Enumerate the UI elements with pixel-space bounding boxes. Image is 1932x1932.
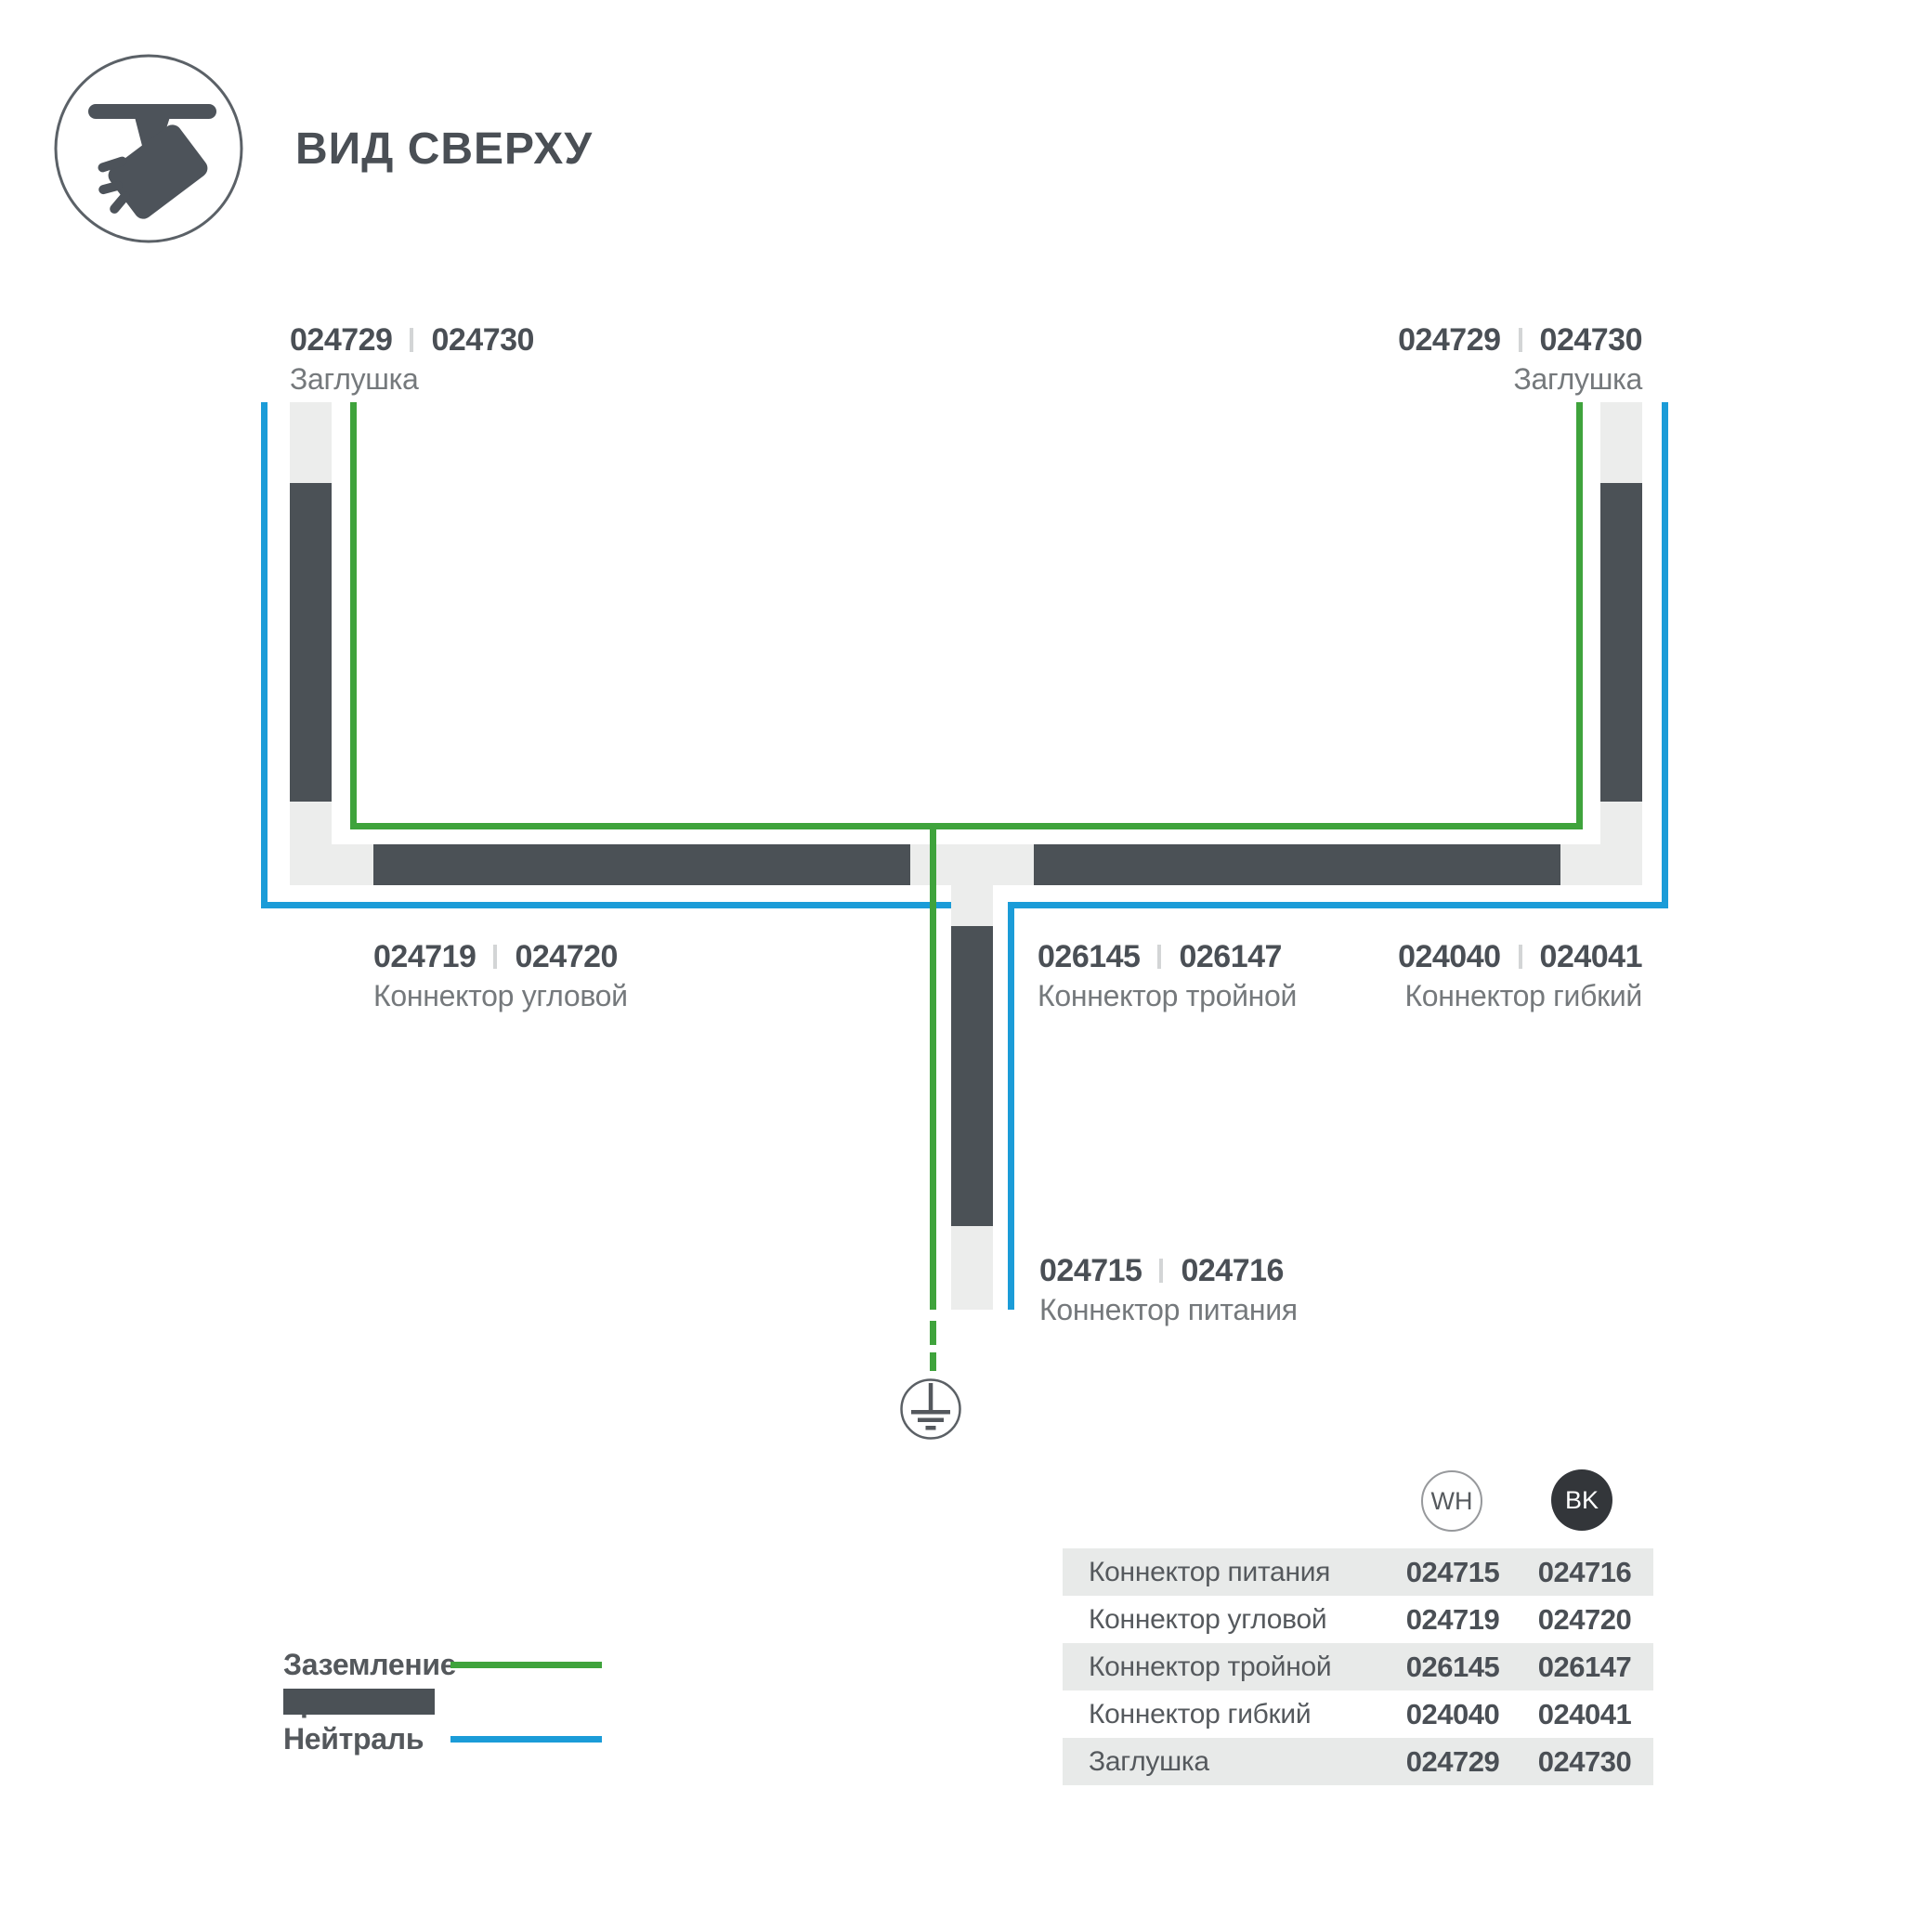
part-name: Заглушка <box>290 362 534 396</box>
track-segment-center <box>951 926 993 1226</box>
ground-line-left-vertical <box>350 402 357 829</box>
separator <box>1157 945 1161 969</box>
article-codes: 024040 024041 <box>1398 938 1642 975</box>
label-corner-connector: 024719 024720 Коннектор угловой <box>373 938 628 1012</box>
separator <box>410 328 413 352</box>
article-wh: 024729 <box>290 321 392 359</box>
table-row: Коннектор питания 024715 024716 <box>1063 1548 1653 1596</box>
article-bk: 024720 <box>515 938 617 975</box>
legend-row-neutral: Нейтраль <box>283 1720 602 1757</box>
color-badge-white: WH <box>1421 1470 1482 1532</box>
table-row: Коннектор тройной 026145 026147 <box>1063 1643 1653 1690</box>
part-name: Коннектор гибкий <box>1404 979 1642 1012</box>
legend-row-ground: Заземление <box>283 1646 602 1683</box>
legend: Заземление Трек Нейтраль <box>283 1646 602 1757</box>
article-wh: 026145 <box>1038 938 1140 975</box>
part-name: Коннектор питания <box>1039 1293 1298 1326</box>
track-segment-top-right <box>1034 844 1560 885</box>
label-flexible-connector: 024040 024041 Коннектор гибкий <box>1398 938 1642 1012</box>
track-swatch <box>283 1689 435 1715</box>
article-codes: 026145 026147 <box>1038 938 1297 975</box>
corner-connector-right-vertical <box>1600 802 1642 885</box>
triple-connector-horizontal <box>910 844 1034 885</box>
separator <box>1159 1259 1163 1283</box>
ground-line-swatch <box>450 1662 602 1668</box>
neutral-line-swatch <box>450 1736 602 1743</box>
track-spotlight-icon <box>52 52 245 245</box>
legend-label: Заземление <box>283 1648 450 1682</box>
article-codes: 024719 024720 <box>373 938 628 975</box>
corner-connector-left-horizontal <box>332 844 373 885</box>
article-wh-cell: 024715 <box>1390 1556 1516 1589</box>
neutral-line-power-drop <box>1008 902 1014 1310</box>
table-row: Коннектор гибкий 024040 024041 <box>1063 1690 1653 1738</box>
article-wh: 024719 <box>373 938 476 975</box>
separator <box>1519 328 1522 352</box>
part-name-cell: Коннектор угловой <box>1063 1604 1390 1636</box>
earth-ground-icon <box>896 1375 967 1447</box>
part-name-cell: Коннектор гибкий <box>1063 1699 1390 1730</box>
table-row: Коннектор угловой 024719 024720 <box>1063 1596 1653 1643</box>
article-bk-cell: 024730 <box>1516 1745 1653 1779</box>
article-wh-cell: 026145 <box>1390 1651 1516 1684</box>
neutral-line-left-vertical <box>261 402 268 908</box>
article-bk-cell: 024720 <box>1516 1603 1653 1637</box>
article-bk: 026147 <box>1179 938 1281 975</box>
part-name: Коннектор тройной <box>1038 979 1297 1012</box>
ground-line-right-vertical <box>1576 402 1583 829</box>
neutral-line-left-horizontal <box>261 902 951 908</box>
corner-connector-left-vertical <box>290 802 332 885</box>
triple-connector-stem <box>951 885 993 926</box>
track-segment-right <box>1600 483 1642 802</box>
article-bk-cell: 026147 <box>1516 1651 1653 1684</box>
ground-line-center-drop <box>930 823 936 1310</box>
track-segment-left <box>290 483 332 802</box>
ground-line-dash-2 <box>930 1352 936 1371</box>
legend-label: Нейтраль <box>283 1722 450 1756</box>
article-wh: 024715 <box>1039 1252 1142 1289</box>
separator <box>1519 945 1522 969</box>
track-segment-top-left <box>373 844 910 885</box>
article-wh: 024040 <box>1398 938 1500 975</box>
article-codes: 024715 024716 <box>1039 1252 1298 1289</box>
part-name: Заглушка <box>1513 362 1642 396</box>
article-bk-cell: 024716 <box>1516 1556 1653 1589</box>
ground-line-horizontal <box>350 823 1583 829</box>
diagram-canvas: ВИД СВЕРХУ 024729 024730 <box>0 0 1932 1932</box>
article-bk: 024730 <box>1540 321 1642 359</box>
label-power-connector: 024715 024716 Коннектор питания <box>1039 1252 1298 1326</box>
page-title: ВИД СВЕРХУ <box>295 124 593 175</box>
separator <box>493 945 497 969</box>
article-bk: 024041 <box>1540 938 1642 975</box>
end-cap-right <box>1600 402 1642 483</box>
color-badge-black: BK <box>1551 1469 1612 1531</box>
ground-line-dash-1 <box>930 1321 936 1345</box>
label-triple-connector: 026145 026147 Коннектор тройной <box>1038 938 1297 1012</box>
article-bk: 024730 <box>431 321 533 359</box>
legend-row-track: Трек <box>283 1683 602 1720</box>
part-name: Коннектор угловой <box>373 979 628 1012</box>
article-wh-cell: 024040 <box>1390 1698 1516 1731</box>
article-bk: 024716 <box>1181 1252 1283 1289</box>
article-wh-cell: 024719 <box>1390 1603 1516 1637</box>
part-name-cell: Коннектор питания <box>1063 1557 1390 1588</box>
neutral-line-right-vertical <box>1662 402 1668 908</box>
corner-connector-right-horizontal <box>1560 844 1600 885</box>
end-cap-left <box>290 402 332 483</box>
part-name-cell: Коннектор тройной <box>1063 1651 1390 1683</box>
article-codes: 024729 024730 <box>290 321 534 359</box>
parts-table: Коннектор питания 024715 024716 Коннекто… <box>1063 1548 1653 1785</box>
label-end-cap-left: 024729 024730 Заглушка <box>290 321 534 396</box>
article-wh: 024729 <box>1398 321 1500 359</box>
article-wh-cell: 024729 <box>1390 1745 1516 1779</box>
table-row: Заглушка 024729 024730 <box>1063 1738 1653 1785</box>
label-end-cap-right: 024729 024730 Заглушка <box>1398 321 1642 396</box>
power-connector <box>951 1226 993 1310</box>
article-codes: 024729 024730 <box>1398 321 1642 359</box>
neutral-line-right-horizontal <box>1008 902 1668 908</box>
article-bk-cell: 024041 <box>1516 1698 1653 1731</box>
part-name-cell: Заглушка <box>1063 1746 1390 1778</box>
